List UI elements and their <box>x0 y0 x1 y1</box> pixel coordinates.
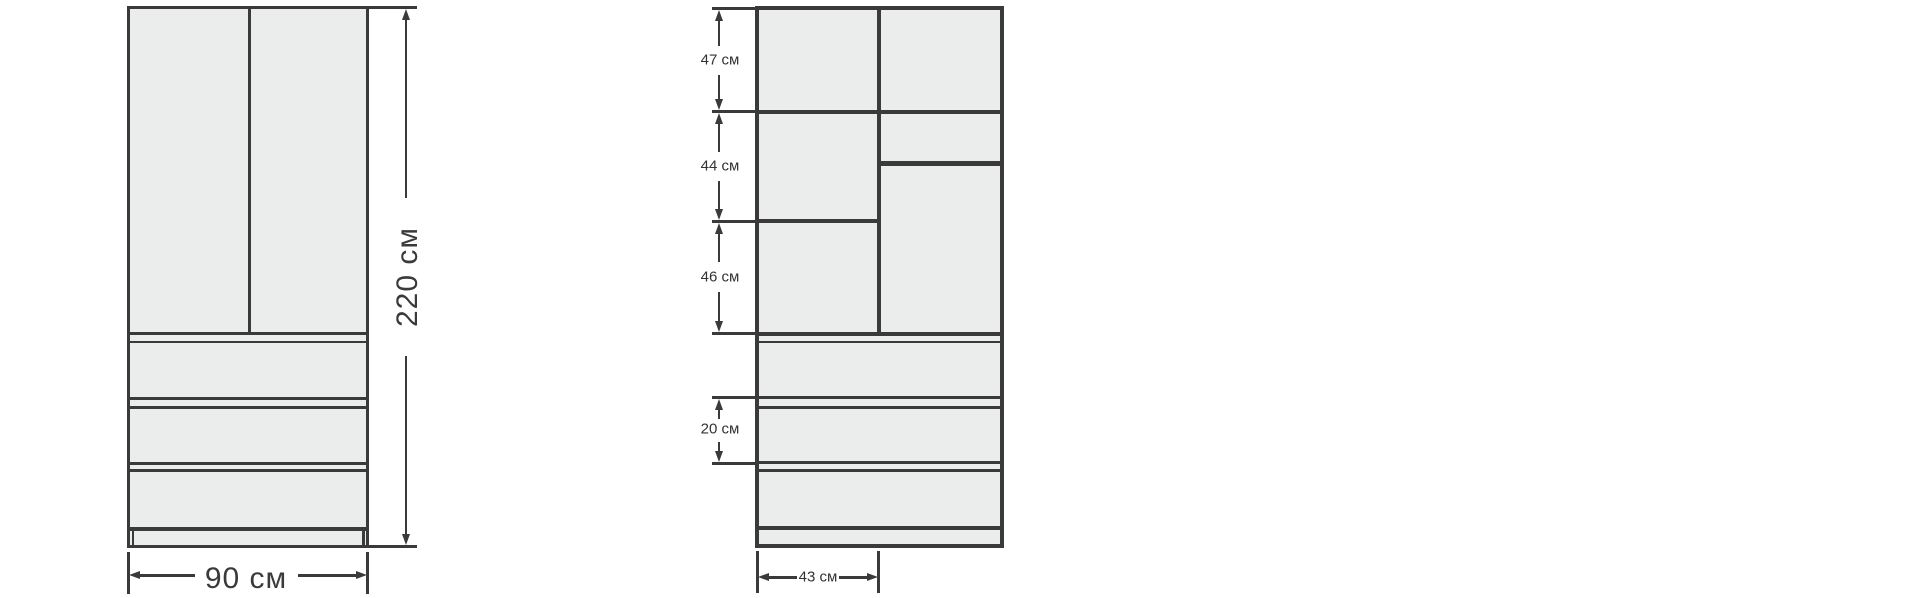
dim-47-line-lower <box>718 75 720 101</box>
front-drawer-1-top-line <box>130 341 366 343</box>
internal-drawer-1-bottom-line <box>759 396 1000 399</box>
top-section-height-label: 47 см <box>701 53 740 68</box>
column-width-line-left <box>767 576 797 579</box>
height-dimension-label: 220 см <box>393 227 423 327</box>
arrow-down-icon <box>715 99 723 110</box>
arrow-down-icon <box>402 534 410 545</box>
height-dimension-line-upper <box>405 18 407 198</box>
internal-drawer-3-bottom-line <box>759 526 1000 530</box>
height-dimension-line-lower <box>405 356 407 535</box>
internal-bottom-panel-line <box>759 332 1000 336</box>
arrow-right-icon <box>356 571 367 579</box>
width-dimension-label: 90 см <box>205 564 287 594</box>
internal-right-shelf-line <box>881 161 1000 166</box>
height-dim-extension-bottom-line <box>369 545 417 548</box>
internal-ext-line-drawer-bottom <box>712 462 757 465</box>
wardrobe-front-view <box>127 6 369 548</box>
front-plinth-right-foot-line <box>362 531 365 545</box>
column-width-ext-left-line <box>756 551 759 593</box>
middle-section-height-label: 44 см <box>701 159 740 174</box>
front-drawer-2-bottom-line <box>130 462 366 465</box>
front-drawer-1-bottom-line <box>130 397 366 400</box>
internal-shelf-line-2 <box>759 219 877 223</box>
front-drawer-3-bottom-line <box>130 527 366 531</box>
wardrobe-internal-view <box>755 6 1004 548</box>
dim-46-line-lower <box>718 292 720 321</box>
dim-44-line-upper <box>718 122 720 152</box>
width-dimension-line-right <box>298 574 357 577</box>
dim-47-line-upper <box>718 19 720 46</box>
internal-drawer-2-top-line <box>759 406 1000 409</box>
front-door-divider-line <box>248 9 251 332</box>
internal-drawer-3-top-line <box>759 469 1000 472</box>
width-dimension-line-left <box>138 574 195 577</box>
column-width-label: 43 см <box>799 570 838 585</box>
arrow-down-icon <box>715 209 723 220</box>
internal-drawer-1-top-line <box>759 341 1000 343</box>
internal-drawer-2-bottom-line <box>759 461 1000 464</box>
dim-46-line-upper <box>718 232 720 262</box>
front-drawer-3-top-line <box>130 469 366 472</box>
dim-20-line-upper <box>718 408 720 419</box>
drawer-height-label: 20 см <box>701 422 740 437</box>
front-drawer-2-top-line <box>130 406 366 409</box>
column-width-ext-right-line <box>877 551 880 593</box>
lower-section-height-label: 46 см <box>701 270 740 285</box>
column-width-line-right <box>839 576 868 579</box>
front-plinth-left-foot-line <box>132 531 135 545</box>
internal-vertical-divider <box>877 10 881 336</box>
arrow-down-icon <box>715 451 723 462</box>
dim-44-line-lower <box>718 181 720 211</box>
arrow-right-icon <box>867 573 878 581</box>
arrow-down-icon <box>715 321 723 332</box>
front-doors-bottom-line <box>130 332 366 335</box>
internal-ext-line-bottom-panel <box>712 332 757 335</box>
wardrobe-diagram-canvas: 220 см 90 см 47 см <box>0 0 1921 598</box>
